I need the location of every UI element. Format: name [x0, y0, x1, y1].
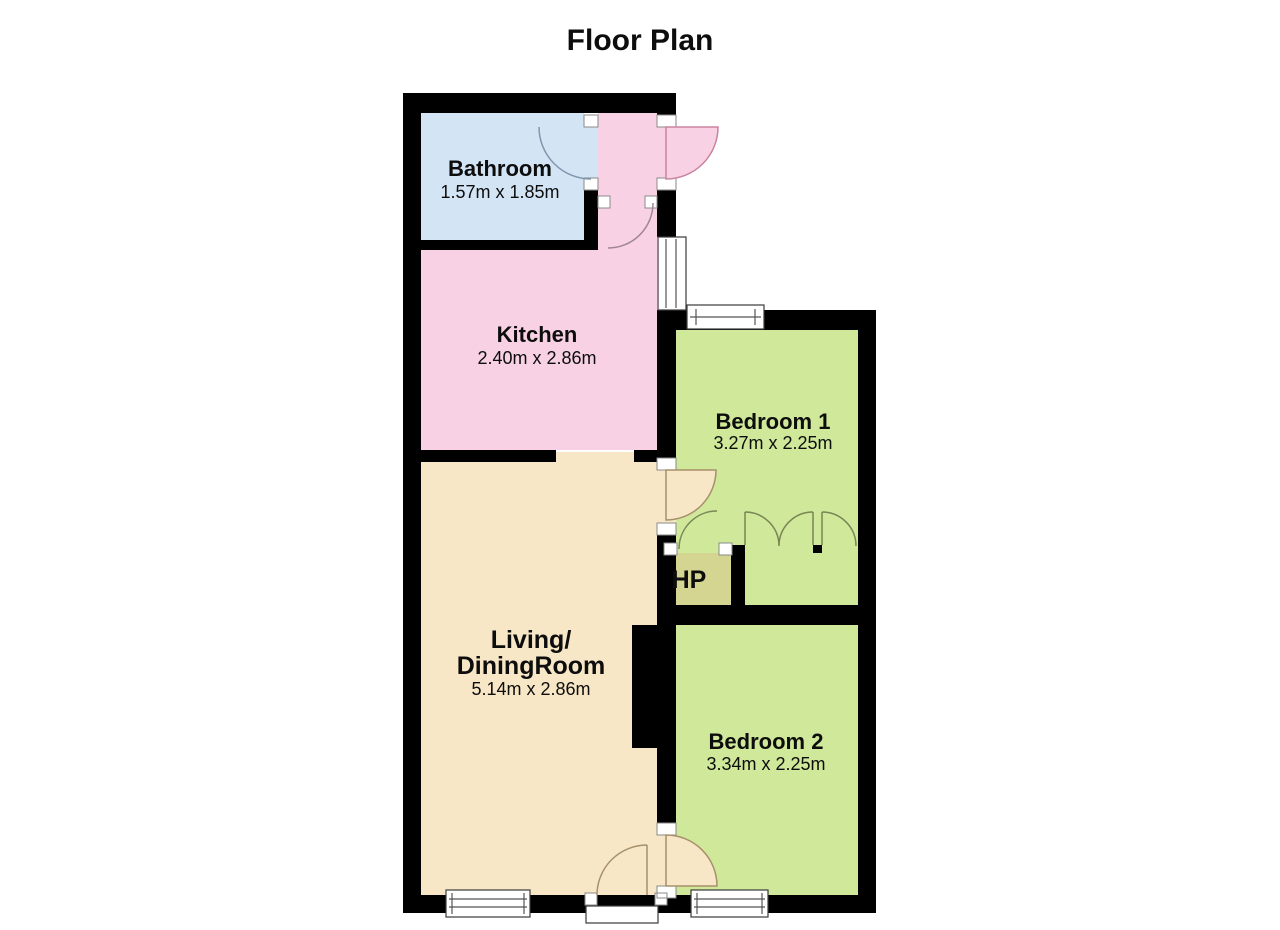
room-dims-kitchen: 2.40m x 2.86m	[477, 348, 596, 368]
room-dims-bathroom: 1.57m x 1.85m	[440, 182, 559, 202]
room-dims-bedroom1: 3.27m x 2.25m	[713, 433, 832, 453]
room-label-hp: HP	[672, 566, 707, 594]
bedroom2-window	[691, 890, 768, 917]
bedroom1-closet-floor	[745, 553, 858, 605]
room-fills	[421, 113, 858, 913]
floor-plan-page: Floor Plan Bathroom 1.57m x 1.85m Kitche…	[0, 0, 1280, 930]
bathroom-door-opening-floor	[584, 127, 598, 178]
room-label-bedroom1: Bedroom 1	[716, 409, 831, 434]
living-window	[446, 890, 530, 917]
bedroom1-window	[687, 305, 764, 329]
patio-door-threshold	[586, 906, 658, 923]
living-window-frame	[446, 890, 530, 917]
floor-plan-svg: Floor Plan Bathroom 1.57m x 1.85m Kitche…	[0, 0, 1280, 930]
hall-window	[658, 237, 686, 310]
room-label-kitchen: Kitchen	[497, 322, 578, 347]
page-title: Floor Plan	[567, 24, 714, 57]
room-dims-living: 5.14m x 2.86m	[471, 679, 590, 699]
room-label-bathroom: Bathroom	[448, 156, 552, 181]
bedroom2-window-frame	[691, 890, 768, 917]
entry-door-swing	[666, 127, 718, 179]
room-label-bedroom2: Bedroom 2	[709, 729, 824, 754]
room-label-living-line2: DiningRoom	[457, 652, 606, 680]
hall-window-frame	[658, 237, 686, 310]
room-label-living-line1: Living/	[491, 626, 572, 654]
room-dims-bedroom2: 3.34m x 2.25m	[706, 754, 825, 774]
